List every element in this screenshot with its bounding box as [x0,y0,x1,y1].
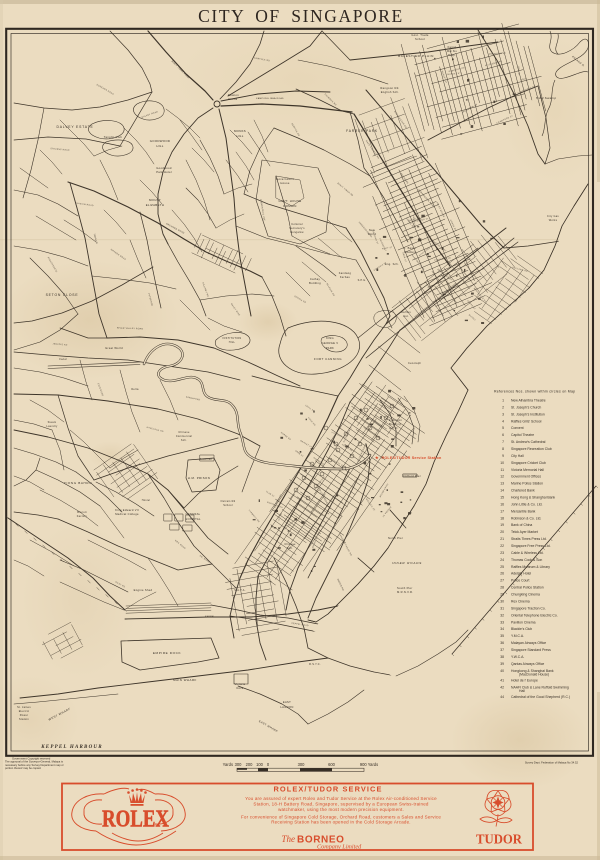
svg-text:Y.W.C.A.: Y.W.C.A. [511,655,524,659]
svg-text:8: 8 [502,447,504,451]
svg-text:40: 40 [500,669,504,673]
svg-text:9: 9 [502,454,504,458]
svg-text:FORT CANNING: FORT CANNING [314,357,342,361]
svg-text:Dock: Dock [237,687,244,690]
svg-text:Kerbau: Kerbau [340,275,350,279]
svg-text:City Gas: City Gas [547,215,559,218]
svg-text:BALESTIER PLAIN: BALESTIER PLAIN [398,54,434,58]
svg-text:INNER ROADS: INNER ROADS [392,561,422,565]
svg-text:300: 300 [298,762,306,767]
svg-text:portion thereof may be copied.: portion thereof may be copied. [5,766,42,770]
svg-text:KAMPONG JAVA ROAD: KAMPONG JAVA ROAD [256,97,284,100]
svg-text:Hostel: Hostel [142,499,151,502]
svg-text:3: 3 [502,412,504,416]
svg-text:Building: Building [309,281,321,285]
svg-text:Commercial: Commercial [176,435,192,438]
svg-text:For convenience of Singapore C: For convenience of Singapore Cold Storag… [241,814,441,819]
svg-text:4: 4 [502,419,504,423]
svg-text:North Pier: North Pier [388,536,403,540]
svg-text:South Pier: South Pier [397,586,413,590]
svg-text:31: 31 [500,606,504,610]
svg-text:TIONG BAHRU: TIONG BAHRU [64,481,92,485]
svg-text:20: 20 [500,530,504,534]
svg-text:References Nos. shown within c: References Nos. shown within circles on … [494,390,575,394]
svg-text:27: 27 [500,579,504,583]
svg-text:Tanglin Club: Tanglin Club [104,135,123,139]
svg-text:CITY OF SINGAPORE: CITY OF SINGAPORE [198,6,404,26]
svg-text:5: 5 [502,426,504,430]
svg-text:Biscuit: Biscuit [77,511,86,514]
svg-text:LAGOON: LAGOON [280,705,293,709]
svg-text:ROLEX/TUDOR SERVICE: ROLEX/TUDOR SERVICE [273,785,382,794]
svg-text:Engine Shed: Engine Shed [134,588,153,592]
svg-text:Station, 18-H Battery Road, Si: Station, 18-H Battery Road, Singapore, s… [253,802,429,807]
svg-text:32: 32 [500,613,504,617]
svg-text:St. Joseph's Church: St. Joseph's Church [511,405,541,409]
svg-text:14: 14 [500,489,504,493]
svg-text:New Alhambra Theatre: New Alhambra Theatre [511,399,546,403]
svg-text:24: 24 [500,558,504,562]
svg-text:Govt. Trade: Govt. Trade [411,33,429,37]
svg-text:10: 10 [500,461,504,465]
svg-text:1: 1 [502,399,504,403]
svg-text:St. Andrew's Cathedral: St. Andrew's Cathedral [511,440,546,444]
svg-text:S.A.T.A.: S.A.T.A. [234,589,245,592]
svg-text:Delta: Delta [131,388,139,391]
svg-text:St. Joseph's Institution: St. Joseph's Institution [511,412,545,416]
svg-text:HILL: HILL [236,134,243,138]
svg-text:King Edward VII: King Edward VII [115,508,139,512]
svg-text:34: 34 [500,627,504,631]
svg-text:Hosp.: Hosp. [448,54,456,57]
svg-text:42: 42 [500,685,504,689]
svg-text:29: 29 [500,593,504,597]
svg-text:English Sch.: English Sch. [381,90,400,94]
svg-text:Steam: Steam [48,421,57,424]
svg-text:22: 22 [500,544,504,548]
svg-text:23: 23 [500,551,504,555]
svg-text:Qantas Airways Office: Qantas Airways Office [511,662,544,666]
svg-text:FARRER PARK: FARRER PARK [346,129,378,133]
svg-text:St. James: St. James [17,706,31,709]
svg-text:Chartered Bank: Chartered Bank [511,489,535,493]
svg-text:KING: KING [326,336,334,340]
svg-text:Robinson & Co. Ltd.: Robinson & Co. Ltd. [511,516,541,520]
svg-text:Wai Siu: Wai Siu [447,50,458,53]
svg-text:Adelphi Hotel: Adelphi Hotel [511,572,531,576]
svg-text:Hotel de l' Europe: Hotel de l' Europe [511,679,538,683]
svg-text:Capitol Theatre: Capitol Theatre [511,433,534,437]
svg-text:Circus: Circus [228,97,238,101]
svg-text:SETON CLOSE: SETON CLOSE [46,293,79,297]
svg-text:Cable & Wireless Ltd.: Cable & Wireless Ltd. [511,551,544,555]
svg-text:H.M. PRISON: H.M. PRISON [188,476,210,480]
svg-text:38: 38 [500,655,504,659]
svg-text:Reservoir: Reservoir [200,458,213,461]
svg-text:Fullerton: Fullerton [389,418,402,422]
svg-text:GOODWOOD: GOODWOOD [150,139,171,143]
svg-text:Singapore Standard Press: Singapore Standard Press [511,648,551,652]
svg-text:16: 16 [500,503,504,507]
svg-text:School: School [415,37,425,41]
svg-text:ELIZABETH: ELIZABETH [146,203,164,207]
svg-text:Central Police Station: Central Police Station [511,586,544,590]
svg-text:44: 44 [500,695,504,699]
svg-text:37: 37 [500,648,504,652]
svg-text:M.R.N.V.R.: M.R.N.V.R. [397,590,413,594]
svg-text:18: 18 [500,516,504,520]
svg-text:21: 21 [500,537,504,541]
svg-text:Raffles: Raffles [401,311,411,314]
svg-text:Company Limited: Company Limited [317,844,362,851]
svg-text:Victoria: Victoria [235,683,246,686]
svg-text:Chungking Cinema: Chungking Cinema [511,593,540,597]
svg-text:Singapore Cricket Club: Singapore Cricket Club [511,461,546,465]
svg-text:6: 6 [502,433,504,437]
svg-text:EAST: EAST [283,700,291,704]
svg-text:Singapore Free Press Ltd.: Singapore Free Press Ltd. [511,544,551,548]
svg-text:25: 25 [500,565,504,569]
svg-text:Chinese: Chinese [178,431,190,434]
svg-text:Victoria Memorial Hall: Victoria Memorial Hall [511,468,544,472]
svg-text:Cenotaph: Cenotaph [408,362,422,365]
svg-text:35: 35 [500,634,504,638]
svg-text:★: ★ [375,455,379,460]
svg-text:Straits Times Press Ltd.: Straits Times Press Ltd. [511,537,547,541]
svg-text:watchmaker, using the most mod: watchmaker, using the most modern precis… [278,807,404,812]
svg-text:15: 15 [500,496,504,500]
svg-text:Pavilion Cinema: Pavilion Cinema [511,620,536,624]
svg-text:Electric: Electric [19,710,30,713]
svg-text:Government: Government [276,177,294,181]
svg-text:Singapore Traction Co.: Singapore Traction Co. [511,606,546,610]
svg-text:GEORGE V: GEORGE V [322,341,339,345]
svg-text:INSTITUTION: INSTITUTION [223,337,242,340]
svg-text:School: School [223,504,233,507]
svg-text:Malayan Airways Office: Malayan Airways Office [511,641,546,645]
svg-text:100: 100 [256,762,264,767]
svg-text:300: 300 [235,762,243,767]
svg-text:Cathedral of the Good Shepherd: Cathedral of the Good Shepherd (R.C.) [511,695,570,699]
svg-text:11: 11 [500,468,504,472]
svg-text:26: 26 [500,572,504,576]
svg-text:36: 36 [500,641,504,645]
svg-text:Raffles Girls' School: Raffles Girls' School [511,419,542,423]
svg-text:MOUNT: MOUNT [149,198,161,202]
svg-text:Outram Rd: Outram Rd [221,500,236,503]
svg-text:Marine Police Station: Marine Police Station [511,482,543,486]
svg-text:TUDOR: TUDOR [476,833,523,848]
svg-text:Canal: Canal [59,358,67,361]
svg-text:Secretary's: Secretary's [289,227,305,230]
svg-text:28: 28 [500,586,504,590]
svg-text:KEPPEL HARBOUR: KEPPEL HARBOUR [40,745,102,750]
svg-text:J. Besar: J. Besar [404,246,416,250]
svg-text:Hall: Hall [519,689,525,693]
svg-text:Great World: Great World [105,346,123,350]
svg-text:PARK: PARK [326,346,334,350]
svg-text:Newton: Newton [228,93,239,97]
svg-text:Rangoon Rd.: Rangoon Rd. [380,86,399,90]
svg-text:Clifford Pier: Clifford Pier [403,474,421,478]
svg-text:Mercantile Bank: Mercantile Bank [511,509,536,513]
svg-text:HILL ST: HILL ST [517,67,519,77]
svg-text:(MacDonald House): (MacDonald House) [519,672,549,676]
svg-text:GENERAL: GENERAL [186,512,201,516]
svg-text:Telok Ayer Market: Telok Ayer Market [511,530,538,534]
svg-text:R.S.Y.C.: R.S.Y.C. [309,663,321,666]
svg-text:MAIN WHARF: MAIN WHARF [173,678,197,682]
svg-text:You are assured of expert Role: You are assured of expert Rolex and Tudo… [245,796,437,801]
svg-text:Blackie's Club: Blackie's Club [511,627,532,631]
svg-text:Medical College: Medical College [115,512,139,516]
svg-text:Station: Station [19,718,29,721]
svg-text:7: 7 [502,440,504,444]
svg-text:41: 41 [500,679,504,683]
svg-text:ROLEX: ROLEX [102,807,170,833]
svg-text:Stadium: Stadium [404,250,416,254]
svg-text:600: 600 [328,762,336,767]
svg-text:30: 30 [500,600,504,604]
svg-text:Building: Building [389,422,401,426]
svg-text:Kandang: Kandang [339,271,352,275]
svg-text:Bank of China: Bank of China [511,523,532,527]
svg-text:Works: Works [549,219,558,222]
svg-text:HILL: HILL [156,144,163,148]
svg-text:John Little & Co. Ltd.: John Little & Co. Ltd. [511,503,543,507]
svg-text:Inst.: Inst. [403,315,409,318]
svg-text:19: 19 [500,523,504,527]
svg-text:S.P.G.: S.P.G. [358,279,367,282]
svg-text:33: 33 [500,620,504,624]
svg-text:MONKS: MONKS [234,129,246,133]
svg-text:Police Court: Police Court [511,579,530,583]
svg-text:Eng. Sch.: Eng. Sch. [385,262,399,266]
svg-text:Receiving Station has been ope: Receiving Station has been opened in the… [271,820,411,825]
svg-text:Colonial: Colonial [291,223,303,226]
svg-text:2: 2 [502,405,504,409]
svg-text:Sch.: Sch. [181,439,187,442]
svg-text:Goodwood: Goodwood [156,166,172,170]
svg-text:House: House [280,181,289,185]
svg-text:Rex Cinema: Rex Cinema [511,600,530,604]
svg-text:13: 13 [500,482,504,486]
svg-text:Laundry: Laundry [46,425,58,428]
svg-text:Thomas Cook & Son: Thomas Cook & Son [511,558,542,562]
svg-text:Park Hotel: Park Hotel [156,170,172,174]
svg-text:Yards: Yards [223,762,233,767]
svg-text:Oriental Telephone Electric Co: Oriental Telephone Electric Co. [511,613,558,617]
svg-text:Convent: Convent [511,426,524,430]
svg-text:HILL: HILL [229,341,236,344]
svg-text:KEPPEL: KEPPEL [205,616,215,618]
svg-text:Factory: Factory [77,515,88,518]
svg-text:17: 17 [500,509,504,513]
svg-text:Government Offices: Government Offices [511,475,541,479]
svg-text:12: 12 [500,475,504,479]
svg-text:Power: Power [20,714,29,717]
svg-text:Hong Kong & Shanghai Bank: Hong Kong & Shanghai Bank [511,496,555,500]
svg-text:GOVT. HOUSE: GOVT. HOUSE [278,199,301,203]
svg-text:ROLEX/TUDOR Service Station: ROLEX/TUDOR Service Station [382,456,442,460]
svg-text:Tidal Swamp: Tidal Swamp [536,96,557,100]
svg-text:HOSPITAL: HOSPITAL [185,517,201,521]
svg-text:EMPIRE DOCK: EMPIRE DOCK [153,651,182,655]
svg-text:200: 200 [246,762,254,767]
svg-text:G.P.O.: G.P.O. [389,426,399,430]
svg-text:DALVEY ESTATE: DALVEY ESTATE [56,125,93,129]
svg-text:The: The [282,834,296,844]
svg-text:Kwong: Kwong [448,46,457,49]
svg-text:Raffles Museum & Library: Raffles Museum & Library [511,565,550,569]
svg-text:Bungalow: Bungalow [290,231,303,234]
svg-text:39: 39 [500,662,504,666]
svg-text:Y.M.C.A.: Y.M.C.A. [511,634,524,638]
svg-text:900 Yards: 900 Yards [360,762,378,767]
svg-text:City Hall: City Hall [511,454,524,458]
svg-text:Singapore Recreation Club: Singapore Recreation Club [511,447,552,451]
svg-text:Survey Dept. Federation of Mal: Survey Dept. Federation of Malaya No 34.… [525,761,579,765]
svg-text:DOMAIN: DOMAIN [283,204,296,208]
svg-text:Cathay: Cathay [310,277,321,281]
